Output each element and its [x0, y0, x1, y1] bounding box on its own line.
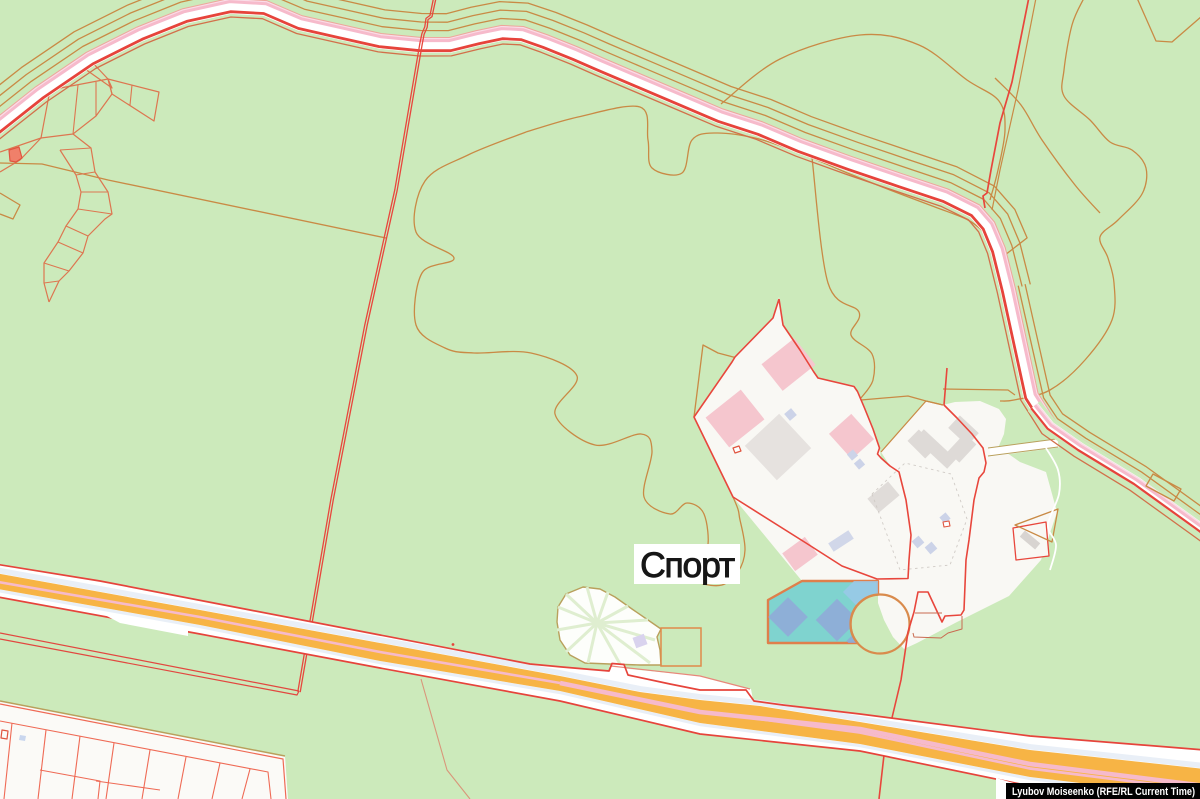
svg-text:Спорт: Спорт — [640, 545, 735, 585]
svg-text:Lyubov Moiseenko (RFE/RL Curre: Lyubov Moiseenko (RFE/RL Current Time) — [1012, 786, 1195, 798]
